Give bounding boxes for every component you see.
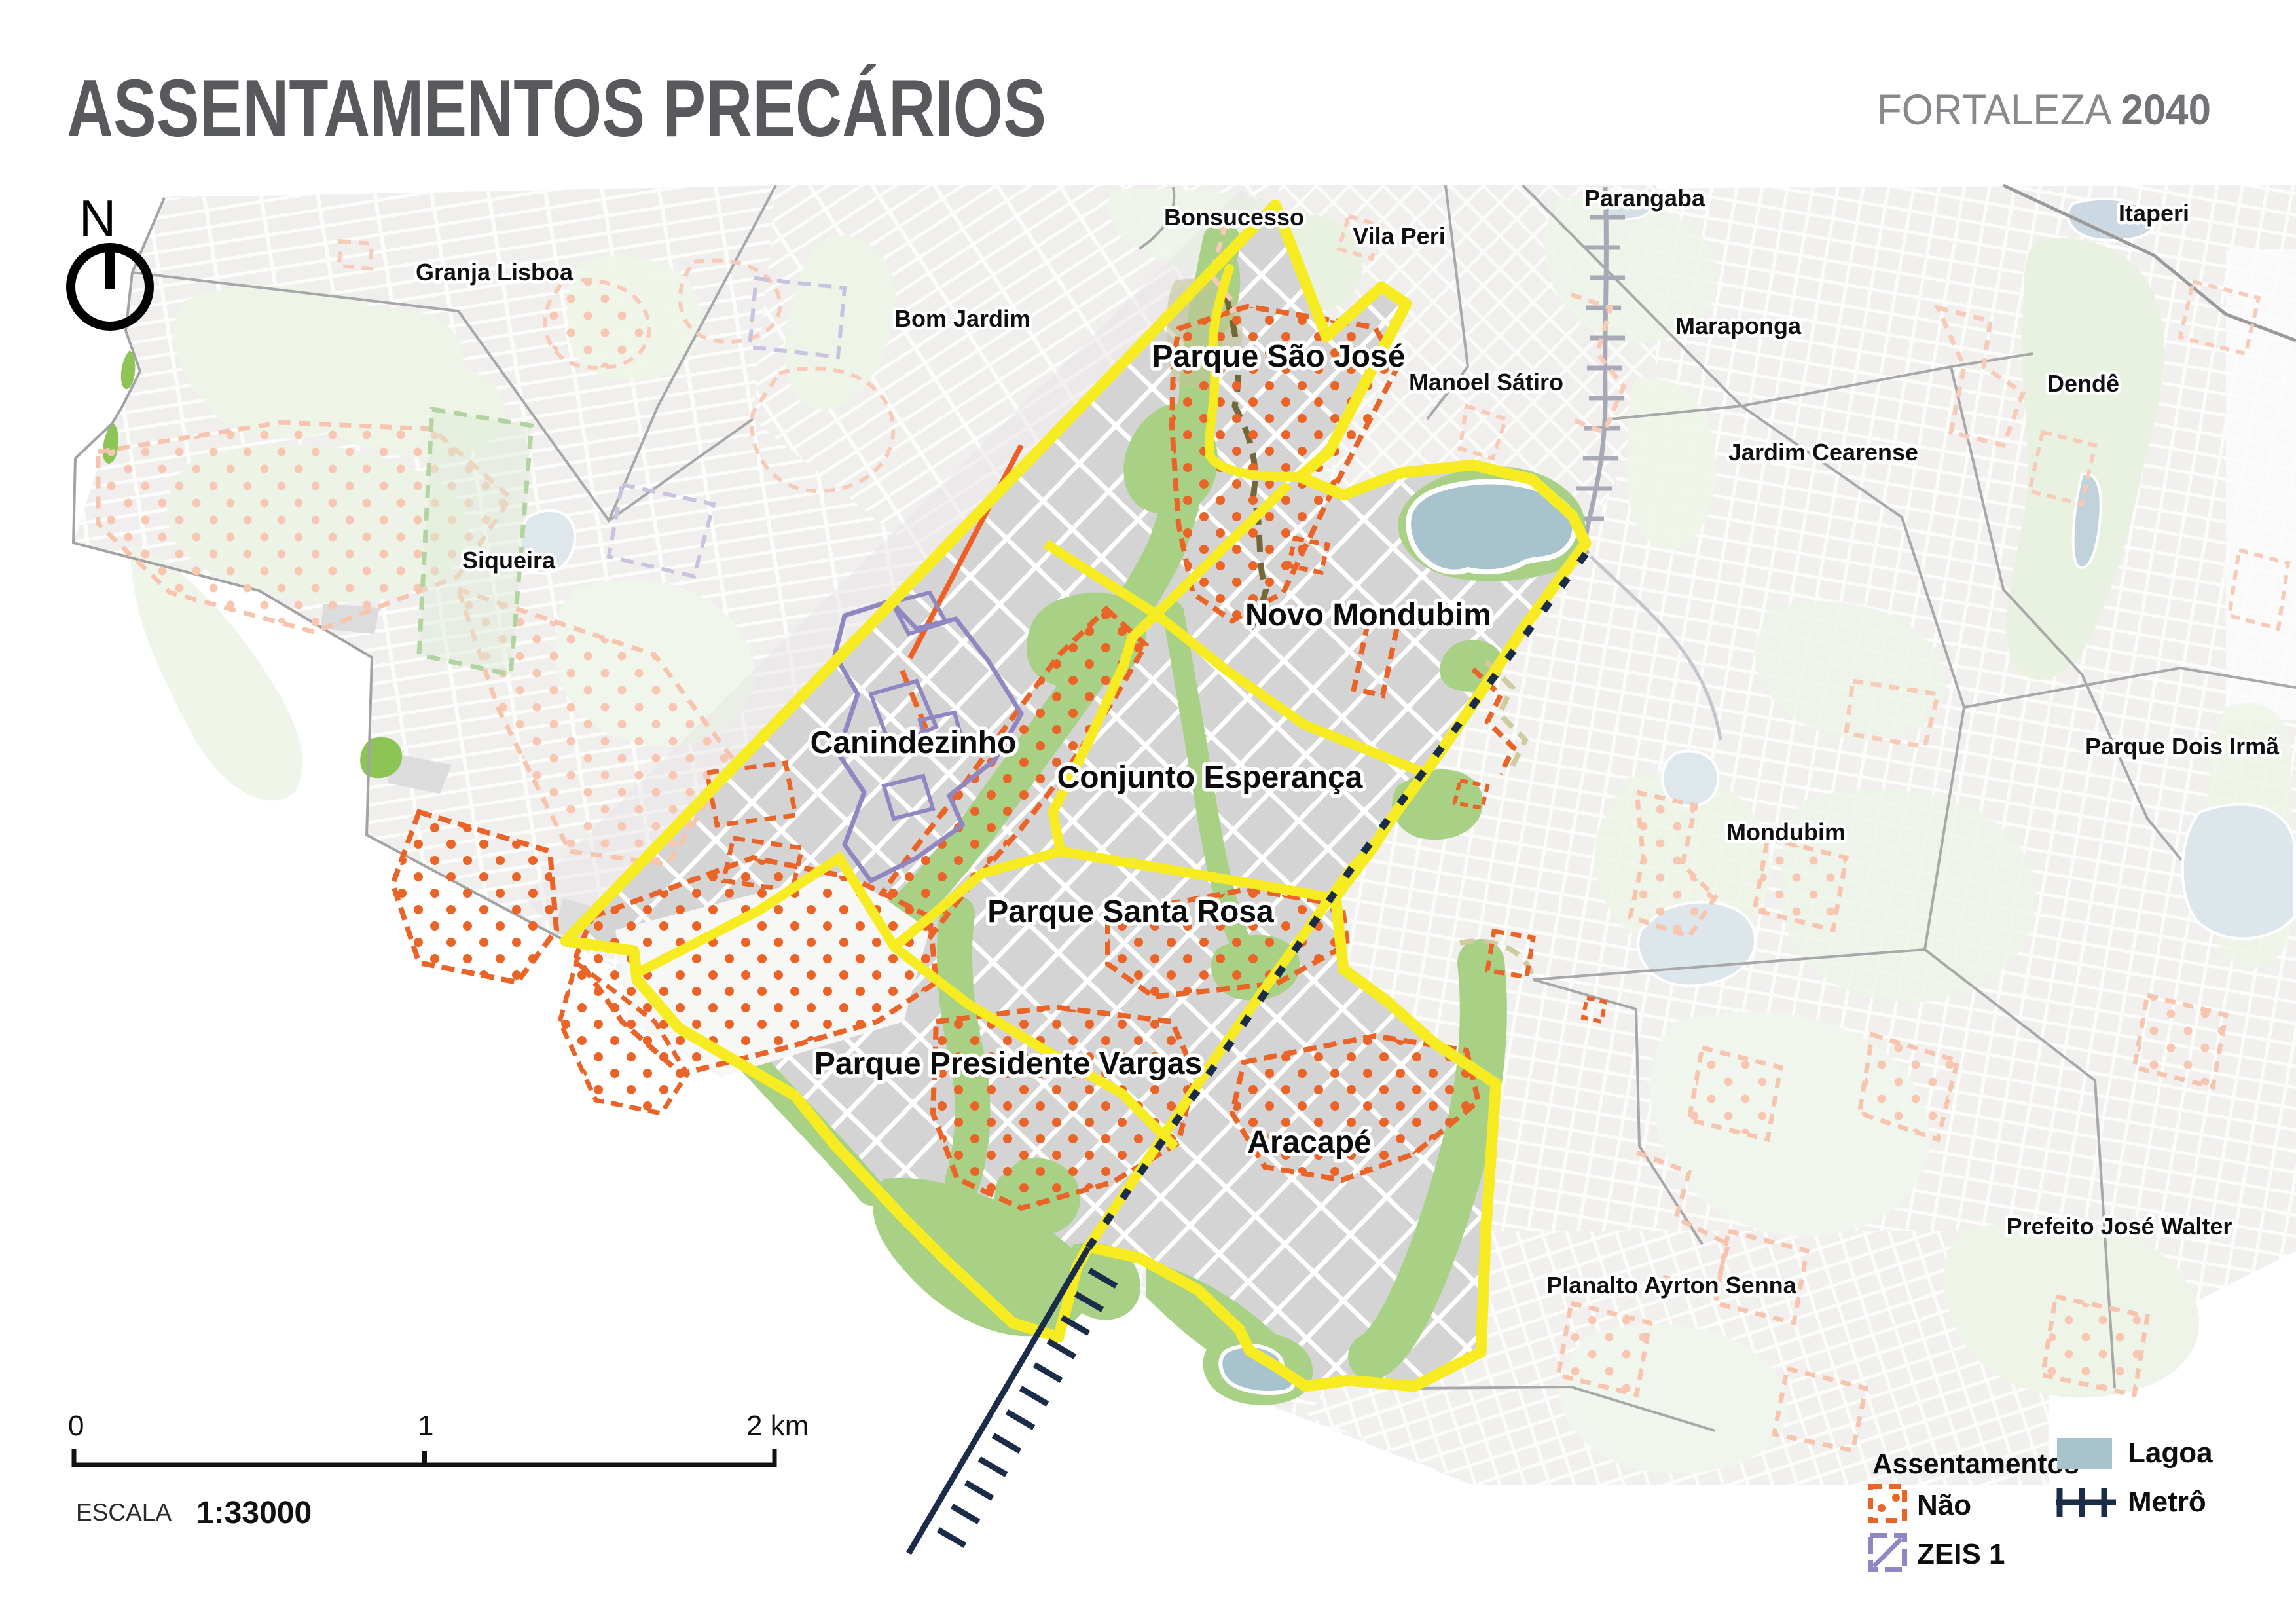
svg-text:Dendê: Dendê bbox=[2047, 370, 2119, 397]
svg-text:Parangaba: Parangaba bbox=[1584, 185, 1705, 212]
svg-text:Siqueira: Siqueira bbox=[462, 547, 556, 574]
svg-text:Lagoa: Lagoa bbox=[2128, 1437, 2213, 1469]
svg-text:Canindezinho: Canindezinho bbox=[811, 726, 1017, 760]
svg-text:Parque Dois Irmã: Parque Dois Irmã bbox=[2085, 733, 2280, 760]
svg-text:Manoel Sátiro: Manoel Sátiro bbox=[1409, 369, 1563, 396]
svg-text:ZEIS 1: ZEIS 1 bbox=[1917, 1538, 2005, 1570]
svg-text:1:33000: 1:33000 bbox=[196, 1496, 312, 1530]
svg-text:Parque Presidente Vargas: Parque Presidente Vargas bbox=[814, 1046, 1202, 1081]
svg-text:Metrô: Metrô bbox=[2128, 1486, 2206, 1518]
svg-text:Maraponga: Maraponga bbox=[1675, 312, 1802, 339]
svg-text:N: N bbox=[79, 189, 116, 247]
svg-text:Parque São José: Parque São José bbox=[1152, 339, 1406, 374]
svg-text:Novo Mondubim: Novo Mondubim bbox=[1245, 598, 1491, 633]
svg-text:Assentamentos: Assentamentos bbox=[1872, 1448, 2079, 1480]
svg-text:Prefeito José Walter: Prefeito José Walter bbox=[2007, 1213, 2232, 1240]
svg-text:2 km: 2 km bbox=[746, 1410, 809, 1442]
svg-text:Aracapé: Aracapé bbox=[1247, 1125, 1371, 1160]
svg-text:1: 1 bbox=[418, 1410, 433, 1442]
svg-text:Granja Lisboa: Granja Lisboa bbox=[416, 259, 574, 286]
svg-text:FORTALEZA 2040: FORTALEZA 2040 bbox=[1877, 85, 2211, 134]
svg-text:ASSENTAMENTOS PRECÁRIOS: ASSENTAMENTOS PRECÁRIOS bbox=[67, 64, 1046, 154]
svg-text:Bom Jardim: Bom Jardim bbox=[894, 305, 1030, 332]
svg-text:Mondubim: Mondubim bbox=[1726, 819, 1846, 845]
svg-text:Conjunto Esperança: Conjunto Esperança bbox=[1057, 760, 1363, 795]
svg-text:Não: Não bbox=[1917, 1489, 1971, 1521]
svg-text:Parque Santa Rosa: Parque Santa Rosa bbox=[987, 895, 1274, 929]
svg-text:Planalto Ayrton Senna: Planalto Ayrton Senna bbox=[1546, 1272, 1796, 1299]
svg-text:Jardim Cearense: Jardim Cearense bbox=[1728, 439, 1918, 466]
svg-text:ESCALA: ESCALA bbox=[76, 1499, 172, 1526]
svg-text:Itaperi: Itaperi bbox=[2119, 200, 2189, 227]
svg-text:Vila Peri: Vila Peri bbox=[1353, 223, 1445, 249]
svg-text:0: 0 bbox=[68, 1410, 84, 1442]
svg-text:Bonsucesso: Bonsucesso bbox=[1164, 204, 1304, 231]
